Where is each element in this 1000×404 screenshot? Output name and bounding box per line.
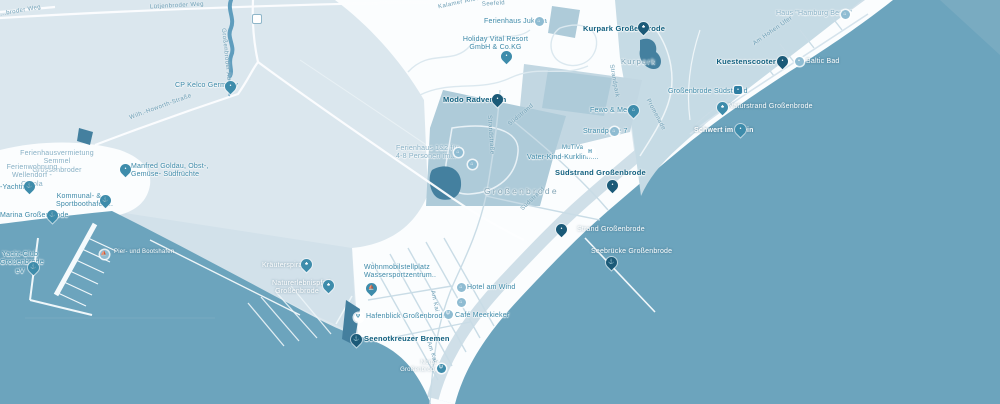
route-shield-icon [252, 14, 262, 24]
cafe-pin-icon[interactable]: Ψ [444, 310, 453, 319]
lodging-pin-icon[interactable]: ⌂ [841, 10, 850, 19]
poi-label-kuestenscooter[interactable]: Kuestenscooter [716, 57, 776, 66]
scooter-pin-icon[interactable]: • [774, 54, 790, 70]
beach-pin-icon[interactable]: • [604, 178, 620, 194]
beach-pin-icon[interactable]: ♣ [714, 100, 730, 116]
poi-label-strandperle[interactable]: Strandperle 7 [583, 128, 628, 136]
poi-label-naturstrand[interactable]: Naturstrand Großenbrode [728, 103, 813, 111]
pier-pin-icon[interactable]: ⚓ [603, 255, 619, 271]
factory-pin-icon[interactable]: • [222, 79, 238, 95]
lodging-pin-icon[interactable]: ⌂ [468, 160, 477, 169]
poi-label-kurpark[interactable]: Kurpark Großenbrode [583, 24, 665, 33]
lodging-pin-icon[interactable]: ⌂ [454, 148, 463, 157]
poi-label-norbu[interactable]: Norbu Großenbrode [398, 360, 438, 374]
poi-label-cafe-meerkieker[interactable]: Café Meerkieker [455, 312, 509, 320]
poi-label-holiday-vital[interactable]: Holiday Vital Resort GmbH & Co.KG [448, 36, 543, 53]
poi-label-mutiva[interactable]: MuTiVa [562, 145, 583, 152]
harbor-pin-icon[interactable]: ⚓ [97, 193, 113, 209]
museum-ship-pin-icon[interactable]: ⚓ [348, 332, 364, 348]
poi-label-manfred-goldau[interactable]: Manfred Goldau, Obst-, Gemüse- Südfrücht… [131, 163, 209, 180]
poi-label-kommunal[interactable]: Kommunal- & Sportboothafen... [56, 193, 102, 210]
lodging-pin-icon[interactable]: ⌂ [457, 298, 466, 307]
lodging-pin-icon[interactable]: ⌂ [610, 127, 619, 136]
area-label-kurpark: Kurpark [621, 57, 656, 66]
hospital-pin-icon[interactable]: H [586, 148, 595, 157]
resort-pin-icon[interactable]: • [498, 49, 514, 65]
poi-label-strand-grossenbrode[interactable]: Strand Großenbrode [577, 226, 645, 234]
park-pin-icon[interactable]: ♣ [635, 20, 651, 36]
marina-pin-icon[interactable]: ⚓ [44, 208, 60, 224]
swim-pin-icon[interactable]: • [795, 57, 804, 66]
yacht-club-pin-icon[interactable]: ⚓ [25, 260, 41, 276]
beach-pin-icon[interactable]: • [553, 222, 569, 238]
pier-pin-icon[interactable]: ⛵ [100, 250, 109, 259]
lodging-pin-icon[interactable]: ⌂ [535, 17, 544, 26]
transit-stop-icon[interactable]: • [734, 86, 742, 94]
poi-label-pier-hafen[interactable]: Pier- und Bootshafen [114, 249, 174, 256]
poi-label-ferienhaus-1-2[interactable]: Ferienhaus 1&2 für 4-8 Personen im... [396, 145, 459, 162]
restaurant-pin-icon[interactable]: Ψ [354, 313, 363, 322]
lodging-pin-icon[interactable]: ⌂ [625, 103, 641, 119]
poi-label-seenotkreuzer[interactable]: Seenotkreuzer Bremen [364, 334, 450, 343]
yachting-pin-icon[interactable]: ⚓ [21, 179, 37, 195]
campsite-pin-icon[interactable]: ⛵ [363, 281, 379, 297]
restaurant-pin-icon[interactable]: Ψ [437, 364, 446, 373]
poi-label-wohnmobil[interactable]: Wohnmobilstellplatz Wassersportzentrum.. [364, 264, 436, 281]
poi-label-seebruecke[interactable]: Seebrücke Großenbrode [591, 248, 672, 256]
garden-pin-icon[interactable]: ♣ [298, 257, 314, 273]
poi-label-suedstrand[interactable]: Südstrand Großenbrode [555, 168, 646, 177]
grocer-pin-icon[interactable]: • [117, 162, 133, 178]
town-label-grossenbrode: Großenbrode [484, 186, 559, 196]
bike-rental-pin-icon[interactable]: • [489, 92, 505, 108]
nature-trail-pin-icon[interactable]: ♣ [320, 278, 336, 294]
poi-label-baltic[interactable]: Baltic Bad [806, 58, 840, 66]
map-canvas[interactable]: Lütjenbroder Weg ...broder Weg Großenbro… [0, 0, 1000, 404]
poi-label-naturerlebnispfad[interactable]: Naturerlebnispfad Großenbrode [272, 280, 322, 297]
poi-label-hotel-am-wind[interactable]: Hotel am Wind [467, 284, 516, 292]
monument-pin-icon[interactable]: • [732, 122, 748, 138]
poi-label-hafenblick[interactable]: Hafenblick Großenbrode [366, 313, 447, 321]
lodging-pin-icon[interactable]: ⌂ [457, 283, 466, 292]
